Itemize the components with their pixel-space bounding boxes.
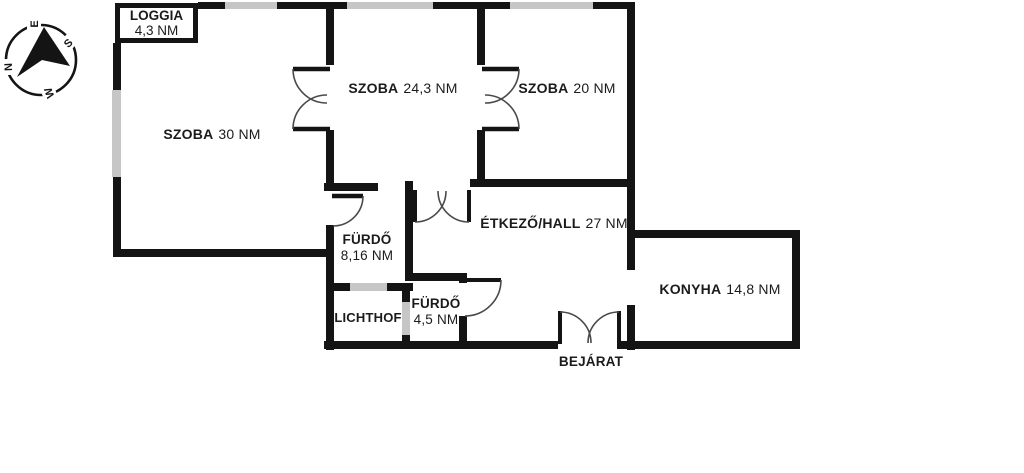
door-arc xyxy=(560,312,591,343)
door-arc xyxy=(465,280,501,316)
compass-letter-n: N xyxy=(1,59,16,75)
wall-segment xyxy=(632,230,800,238)
room-area-loggia: 4,3 NM xyxy=(135,23,179,38)
door-arc xyxy=(293,69,327,103)
svg-text:N: N xyxy=(3,63,15,71)
room-label-szoba-20: SZOBA20 NM xyxy=(518,80,615,96)
door-arc xyxy=(485,69,519,103)
svg-text:E: E xyxy=(29,20,41,27)
entrance-label-bejarat: BEJÁRAT xyxy=(559,354,623,370)
wall-segment xyxy=(326,283,350,291)
window-segment xyxy=(510,2,593,9)
room-label-furdo-8: FÜRDŐ8,16 NM xyxy=(341,232,393,264)
door-arc xyxy=(438,191,469,222)
wall-segment xyxy=(402,291,410,302)
wall-segment xyxy=(387,283,413,291)
door-arc xyxy=(415,191,446,222)
wall-segment xyxy=(405,273,467,281)
door-arcs xyxy=(0,0,1024,473)
wall-segment xyxy=(617,341,800,349)
wall-segment xyxy=(277,2,347,9)
wall-segment xyxy=(405,181,413,273)
wall-segment xyxy=(113,249,334,257)
wall-segment xyxy=(113,43,121,90)
window-segment xyxy=(350,283,387,291)
wall-segment xyxy=(324,341,558,349)
compass-letter-e: E xyxy=(27,16,41,32)
wall-segment xyxy=(433,2,510,9)
wall-segment xyxy=(477,130,485,187)
room-label-furdo-4: FÜRDŐ4,5 NM xyxy=(412,296,461,328)
compass-needle-icon xyxy=(17,27,70,77)
room-label-etkezo-hall: ÉTKEZŐ/HALL27 NM xyxy=(480,215,627,231)
compass-letter-w: W xyxy=(40,83,59,103)
door-arc xyxy=(588,312,619,343)
wall-segment xyxy=(792,230,800,349)
window-segment xyxy=(402,302,410,335)
wall-segment xyxy=(470,179,632,187)
wall-segment xyxy=(477,2,485,65)
wall-segment xyxy=(326,2,334,65)
door-arc xyxy=(485,95,519,129)
door-arc xyxy=(333,196,363,226)
room-label-szoba-24: SZOBA24,3 NM xyxy=(348,80,457,96)
room-loggia-outline: LOGGIA 4,3 NM xyxy=(115,3,198,43)
window-segment xyxy=(347,2,433,9)
wall-segment xyxy=(324,183,378,191)
room-label-konyha: KONYHA14,8 NM xyxy=(659,281,780,297)
wall-segment xyxy=(198,2,225,9)
room-label-szoba-30: SZOBA30 NM xyxy=(163,126,260,142)
compass-rose: E S N W xyxy=(0,14,86,108)
wall-segment xyxy=(459,273,467,283)
floor-plan: E S N W LOGGIA 4,3 NM xyxy=(0,0,1024,473)
room-label-lichthof: LICHTHOF xyxy=(334,310,401,326)
window-segment xyxy=(112,90,121,177)
window-segment xyxy=(225,2,277,9)
room-label-loggia: LOGGIA xyxy=(130,8,183,23)
wall-segment xyxy=(113,177,121,257)
wall-segment xyxy=(326,130,334,190)
door-arc xyxy=(293,95,327,129)
